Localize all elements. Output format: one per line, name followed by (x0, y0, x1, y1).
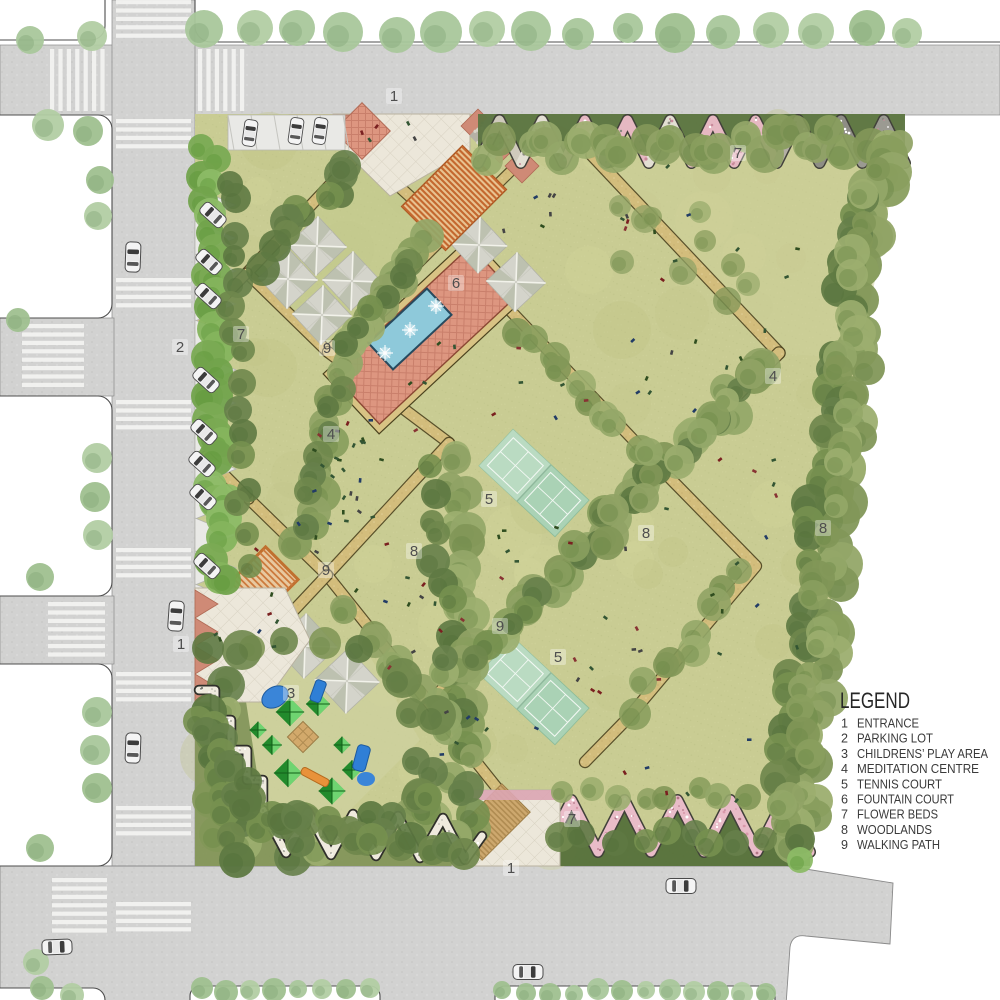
svg-text:8: 8 (841, 823, 848, 837)
svg-text:1: 1 (841, 717, 848, 731)
svg-text:FOUNTAIN COURT: FOUNTAIN COURT (857, 793, 954, 807)
svg-text:8: 8 (642, 525, 650, 542)
svg-text:5: 5 (554, 649, 562, 666)
svg-text:FLOWER BEDS: FLOWER BEDS (857, 808, 938, 822)
svg-text:8: 8 (819, 520, 827, 537)
svg-text:3: 3 (841, 747, 848, 761)
svg-text:1: 1 (507, 860, 515, 877)
svg-text:7: 7 (734, 145, 742, 162)
svg-text:4: 4 (769, 368, 777, 385)
svg-text:9: 9 (322, 562, 330, 579)
svg-text:9: 9 (841, 838, 848, 852)
svg-text:2: 2 (176, 339, 184, 356)
svg-text:5: 5 (485, 491, 493, 508)
svg-text:ENTRANCE: ENTRANCE (857, 717, 919, 731)
svg-text:9: 9 (323, 340, 331, 357)
svg-text:1: 1 (177, 636, 185, 653)
svg-text:6: 6 (841, 793, 848, 807)
svg-text:MEDITATION CENTRE: MEDITATION CENTRE (857, 762, 979, 776)
svg-text:4: 4 (327, 426, 335, 443)
svg-text:1: 1 (390, 88, 398, 105)
svg-text:3: 3 (287, 685, 295, 702)
svg-text:PARKING LOT: PARKING LOT (857, 732, 933, 746)
svg-text:7: 7 (841, 808, 848, 822)
svg-text:7: 7 (237, 326, 245, 343)
svg-text:LEGEND: LEGEND (840, 688, 910, 713)
svg-text:4: 4 (841, 762, 848, 776)
svg-text:6: 6 (452, 275, 460, 292)
svg-text:8: 8 (410, 543, 418, 560)
svg-text:9: 9 (496, 618, 504, 635)
svg-text:TENNIS COURT: TENNIS COURT (857, 777, 942, 791)
svg-text:7: 7 (568, 811, 576, 828)
svg-text:CHILDRENS’ PLAY AREA: CHILDRENS’ PLAY AREA (857, 747, 989, 761)
svg-text:WOODLANDS: WOODLANDS (857, 823, 932, 837)
svg-text:WALKING PATH: WALKING PATH (857, 838, 940, 852)
svg-text:2: 2 (841, 732, 848, 746)
svg-text:5: 5 (841, 777, 848, 791)
